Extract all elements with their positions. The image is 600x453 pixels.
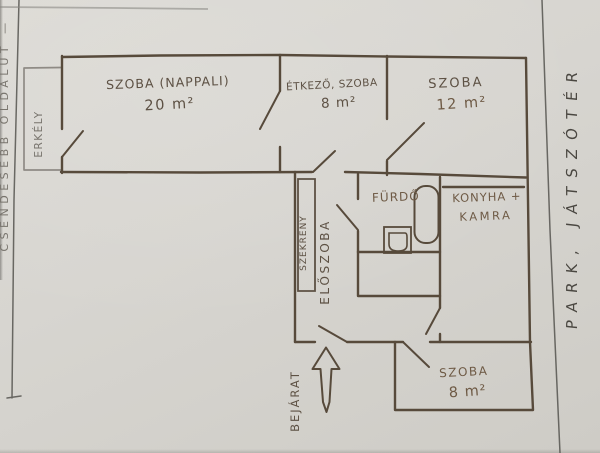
right-margin-note: PARK, JÁTSZÓTÉR [562,62,581,330]
small-room-area: 8 m² [448,383,487,402]
kitchen-label-line2: KAMRA [459,208,512,224]
kitchen-label-line1: KONYHA + [452,189,522,205]
living-room-area: 20 m² [144,96,195,115]
small-room-label: SZOBA [439,364,489,381]
toilet-bowl-icon [389,233,407,251]
bedroom-area: 12 m² [436,94,487,113]
door-swing-small-room [403,342,429,367]
right-margin-line [542,0,560,453]
living-room-label: SZOBA (NAPPALI) [106,73,230,92]
door-swing-balcony [62,131,83,157]
bedroom-label: SZOBA [428,75,484,92]
door-swing-dining-hallway [313,151,335,172]
wall-middle-horizontal [61,172,526,178]
left-margin-end-tick [7,396,21,398]
wall-top-outer [62,55,526,58]
left-margin-note: CSENDESEBB OLDALÚT — [0,18,11,251]
entrance-arrow-icon [313,348,340,413]
door-swing-kitchen [426,308,440,334]
door-swing-living-dining [260,91,280,129]
dining-room-area: 8 m² [321,94,357,112]
door-swing-entrance [319,326,347,342]
wall-right-outer [526,58,530,342]
floor-plan-photo: SZOBA (NAPPALI) 20 m² ÉTKEZŐ, SZOBA 8 m²… [0,0,600,453]
floor-plan-drawing: SZOBA (NAPPALI) 20 m² ÉTKEZŐ, SZOBA 8 m²… [0,0,600,453]
balcony-label: ERKÉLY [32,110,45,157]
entrance-label: BEJÁRAT [287,370,302,432]
hallway-label: ELŐSZOBA [317,219,332,304]
door-swing-bathroom [337,205,358,230]
closet-label: SZEKRÉNY [297,215,309,271]
top-paper-edge-line [0,7,208,9]
door-swing-dining-bedroom [387,123,424,160]
left-margin-line [12,0,19,398]
bathroom-label: FÜRDŐ [372,187,420,205]
wall-lower-compartment [358,252,440,296]
dining-room-label: ÉTKEZŐ, SZOBA [286,75,379,94]
